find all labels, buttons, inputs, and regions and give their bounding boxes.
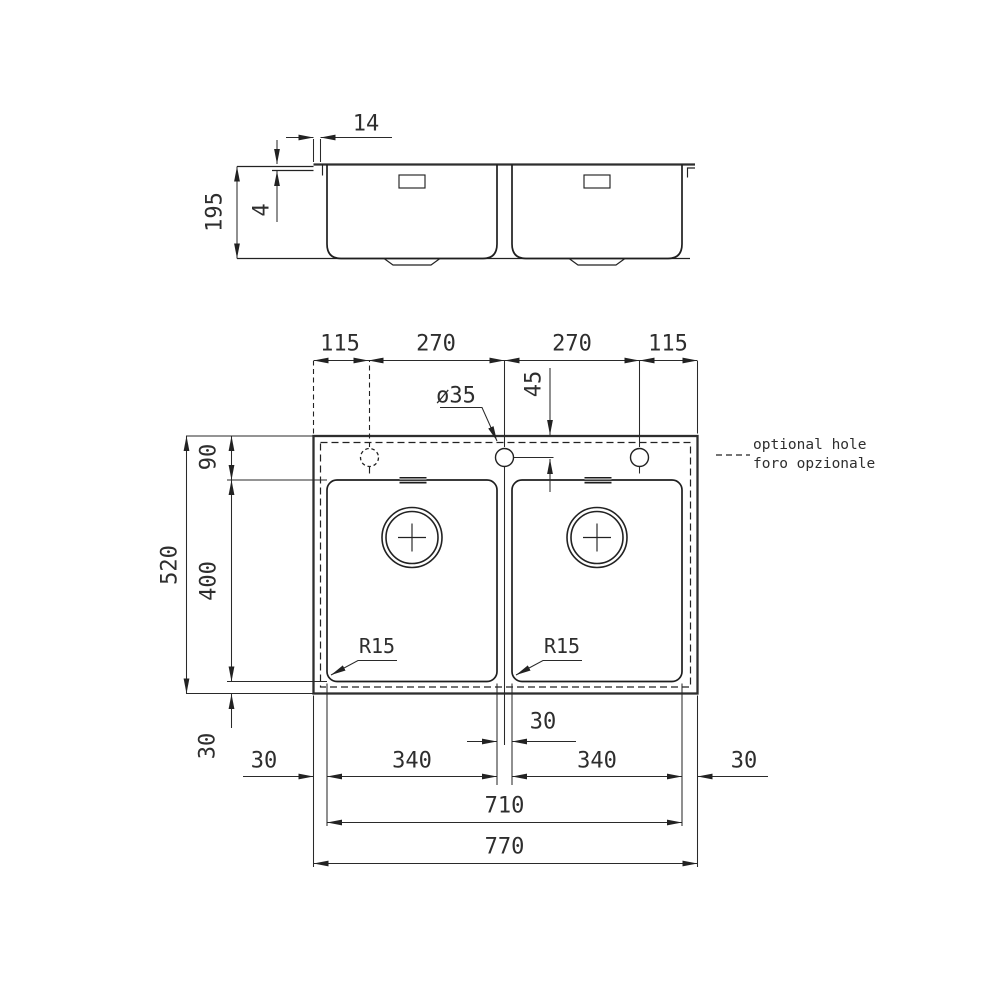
- dim-rim-height: 4: [250, 203, 275, 216]
- dim-bottom-margin: 30: [196, 733, 221, 760]
- dim-top-right-span: 270: [552, 332, 592, 357]
- overflow-right-section: [584, 175, 610, 188]
- dim-corner-radius-left: R15: [359, 634, 395, 658]
- dim-total-depth: 520: [158, 545, 183, 585]
- bowl-right-section: [512, 165, 682, 259]
- bowl-right-outline: [512, 480, 682, 682]
- bowl-left-section: [327, 165, 497, 259]
- dim-corner-radius-right: R15: [544, 634, 580, 658]
- radius-leader-right: [516, 661, 582, 676]
- dim-right-bowl-width: 340: [577, 749, 617, 774]
- rim-right-edge-tick: [688, 168, 696, 178]
- dim-right-margin: 30: [731, 749, 758, 774]
- faucet-hole-right: [631, 449, 649, 467]
- dim-depth: 195: [203, 192, 228, 232]
- legend-line1: optional hole: [753, 437, 867, 453]
- dim-left-bowl-width: 340: [392, 749, 432, 774]
- drain-left-icon: [382, 508, 442, 568]
- dim-top-left-margin: 115: [320, 332, 360, 357]
- drain-recess-right: [569, 259, 625, 266]
- bowl-left-outline: [327, 480, 497, 682]
- overflow-left-section: [399, 175, 425, 188]
- dim-total-width: 770: [485, 835, 525, 860]
- drain-recess-left: [384, 259, 440, 266]
- dimensions: 115 270 270 115 ø35 45 520 90 400 30 30: [158, 332, 769, 868]
- faucet-hole-optional: [361, 449, 379, 467]
- dim-top-left-span: 270: [416, 332, 456, 357]
- faucet-hole-center: [496, 449, 514, 467]
- legend: optional hole foro opzionale: [716, 437, 875, 472]
- overflow-slot-right-icon: [585, 477, 612, 484]
- side-view: 14 4 195: [203, 112, 696, 266]
- dim-bowl-depth: 400: [197, 561, 222, 601]
- dim-top-right-margin: 115: [648, 332, 688, 357]
- dim-inner-width: 710: [485, 794, 525, 819]
- dim-hole-offset: 45: [522, 371, 547, 398]
- drawing-canvas: 14 4 195: [0, 0, 1000, 1000]
- drain-right-icon: [567, 508, 627, 568]
- legend-line2: foro opzionale: [753, 456, 875, 472]
- overflow-slot-left-icon: [400, 477, 427, 484]
- dim-top-margin: 90: [197, 444, 222, 471]
- radius-leader-left: [331, 661, 397, 676]
- dim-left-margin: 30: [251, 749, 278, 774]
- dim-hole-diameter: ø35: [436, 384, 476, 409]
- dim-center-gap: 30: [530, 710, 557, 735]
- dim-tab-width: 14: [353, 112, 380, 137]
- sink-technical-drawing: 14 4 195: [0, 0, 1000, 1000]
